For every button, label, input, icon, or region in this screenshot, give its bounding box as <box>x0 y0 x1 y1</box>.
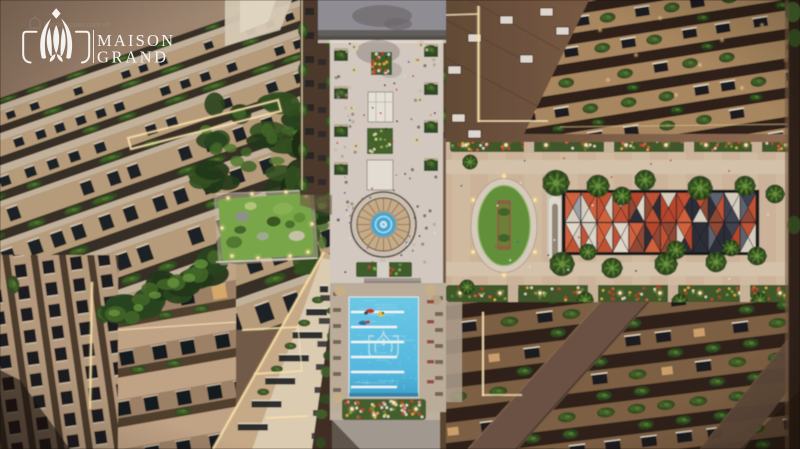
svg-text:Batdongsan.com.vn: Batdongsan.com.vn <box>44 20 110 29</box>
svg-text:GRAND: GRAND <box>97 48 169 67</box>
